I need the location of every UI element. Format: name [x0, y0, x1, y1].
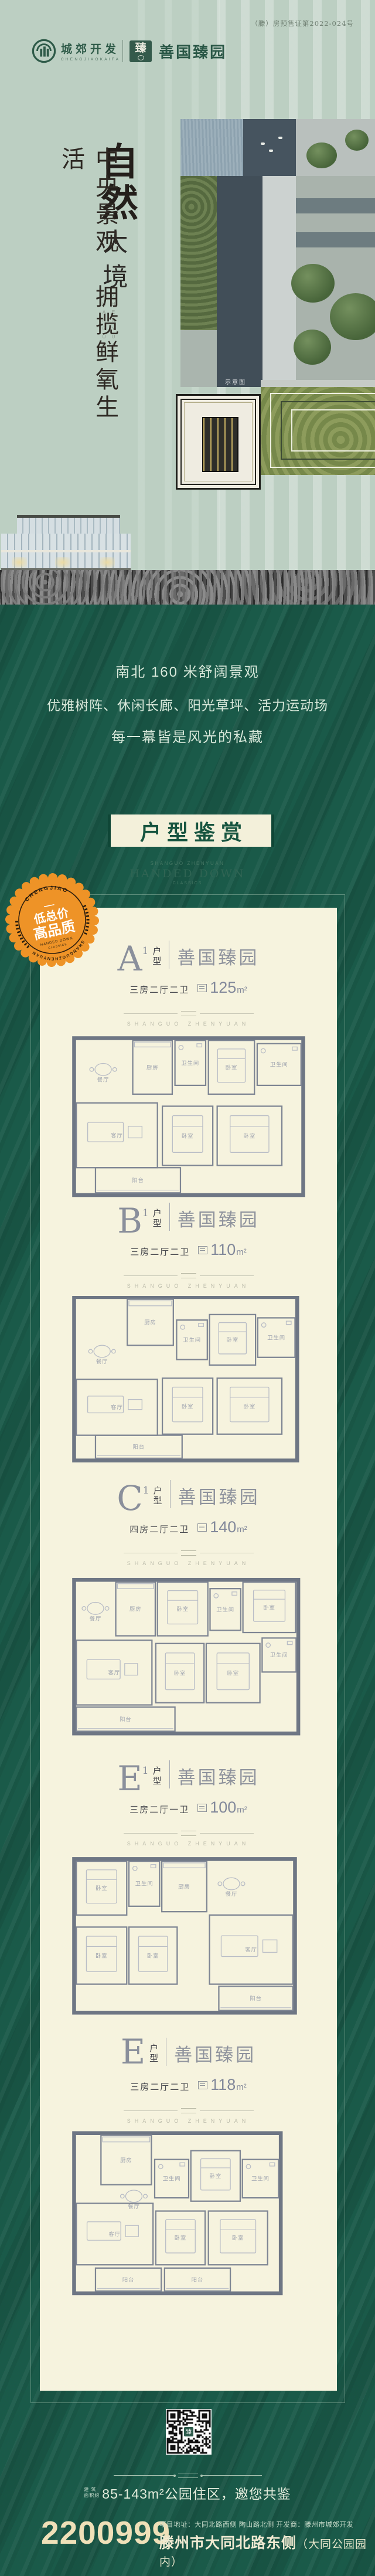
svg-text:阳台: 阳台 [191, 2276, 203, 2283]
plan-area-unit: m² [237, 1805, 247, 1815]
presale-license-text: （滕）房预售证第2022-024号 [251, 19, 354, 28]
svg-text:卫生间: 卫生间 [135, 1881, 153, 1887]
plan-area-unit: m² [237, 1525, 247, 1535]
svg-text:阳台: 阳台 [122, 2276, 134, 2283]
plan-type-label: 户型 [153, 1766, 162, 1786]
plan-room-count: 三房二厅二卫 [130, 2081, 190, 2093]
plan-room-count: 四房二厅二卫 [129, 1523, 189, 1535]
svg-text:卧室: 卧室 [176, 1606, 189, 1612]
plan-area-unit: m² [237, 985, 247, 995]
svg-text:卫生间: 卫生间 [216, 1606, 234, 1613]
clubhouse-rendering [1, 515, 131, 570]
plan-watermark: SHANGUO ZHENYUAN [40, 1283, 337, 1289]
svg-text:卫生间: 卫生间 [251, 2175, 270, 2182]
svg-text:餐厅: 餐厅 [225, 1891, 237, 1897]
hero-section: （滕）房预售证第2022-024号 城郊开发 CHENGJIAOKAIFA 臻 … [0, 0, 375, 570]
developer-name: 城郊开发 [61, 40, 120, 56]
plan-type-label: 户型 [152, 946, 161, 966]
water-feature [180, 119, 243, 176]
poster-page: （滕）房预售证第2022-024号 城郊开发 CHENGJIAOKAIFA 臻 … [0, 0, 375, 2576]
svg-text:卫生间: 卫生间 [270, 1652, 288, 1658]
plan-letter: A1 [118, 934, 149, 976]
svg-text:卫生间: 卫生间 [162, 2175, 180, 2182]
area-icon [198, 2081, 207, 2089]
svg-text:卧室: 卧室 [227, 1670, 239, 1676]
floorplan-drawing: 卧室卫生间厨房餐厅卧室卧室客厅阳台 [62, 1854, 315, 2024]
headline-slogan: 中央景观 拥揽鲜氧生活 [54, 147, 122, 422]
floorplan-drawing: 厨房卫生间卧室卫生间餐厅客厅卧室卧室阳台阳台 [62, 2131, 315, 2301]
address-block: 项目地址：大同北路西侧 陶山路北侧 开发商：滕州市城郊开发 滕州市大同北路东侧（… [159, 2520, 375, 2570]
svg-text:阳台: 阳台 [120, 1716, 132, 1722]
plaza [296, 176, 375, 387]
plan-area: 118 [210, 2076, 236, 2094]
floorplan-drawing: 餐厅厨房卧室卫生间卧室客厅卧室卧室卫生间阳台 [62, 1573, 315, 1743]
svg-text:客厅: 客厅 [108, 2231, 121, 2237]
svg-text:卫生间: 卫生间 [181, 1060, 199, 1066]
footer-divider-ornament [114, 2473, 262, 2478]
plan-room-count: 三房二厅二卫 [129, 983, 189, 996]
floorplan-drawing: 厨房餐厅卫生间卧室卫生间客厅卧室卧室阳台 [62, 1296, 315, 1466]
floorplan-section-E: E 户型 善国臻园 三房二厅二卫 118 m² SHANGUO ZHENYUAN… [40, 2031, 337, 2301]
intro-line-3: 每一幕皆是风光的私藏 [0, 725, 375, 746]
plan-letter: B1 [117, 1196, 148, 1238]
plan-type-label: 户型 [153, 1209, 162, 1228]
plan-ornament [40, 2108, 337, 2113]
plan-letter: E1 [117, 1754, 148, 1796]
plan-letter: E [121, 2035, 145, 2069]
area-icon [197, 1523, 207, 1532]
plan-watermark: SHANGUO ZHENYUAN [40, 1560, 337, 1566]
size-text: 85-143m²公园住区，邀您共鉴 [102, 2483, 291, 2503]
plan-brand: 善国臻园 [174, 2040, 256, 2066]
svg-text:卧室: 卧室 [173, 1670, 186, 1676]
svg-text:厨房: 厨房 [178, 1883, 190, 1889]
floorplan-card-stack: A1 户型 善国臻园 三房二厅二卫 125 m² SHANGUO ZHENYUA… [40, 908, 337, 2391]
intro-line-1: 南北 160 米舒阔景观 [0, 660, 375, 681]
plan-watermark: SHANGUO ZHENYUAN [40, 1841, 337, 1847]
svg-text:客厅: 客厅 [111, 1404, 123, 1410]
address-big: 滕州市大同北路东侧（大同公园园内） [159, 2531, 375, 2570]
svg-text:卧室: 卧室 [243, 1403, 255, 1409]
pavement [296, 119, 375, 176]
plan-ornament [40, 1831, 337, 1836]
svg-text:厨房: 厨房 [129, 1606, 141, 1612]
svg-text:厨房: 厨房 [120, 2157, 132, 2163]
plan-letter: C1 [117, 1474, 149, 1515]
plan-title: E1 户型 善国臻园 [40, 1754, 337, 1795]
area-icon [197, 984, 207, 992]
project-seal-icon: 臻 [129, 40, 152, 62]
plan-brand: 善国臻园 [178, 1205, 260, 1231]
svg-text:客厅: 客厅 [111, 1132, 123, 1138]
photo-caption: 示意图 [225, 377, 246, 386]
svg-text:阳台: 阳台 [132, 1177, 144, 1183]
intro-line-2: 优雅树阵、休闲长廊、阳光草坪、活力运动场 [0, 694, 375, 714]
svg-text:卧室: 卧室 [263, 1604, 275, 1610]
svg-text:卧室: 卧室 [174, 2235, 186, 2241]
floorplan-section-C1: C1 户型 善国臻园 四房二厅二卫 140 m² SHANGUO ZHENYUA… [40, 1474, 337, 1743]
svg-text:餐厅: 餐厅 [96, 1358, 108, 1365]
svg-text:卧室: 卧室 [209, 2173, 221, 2179]
canal [217, 176, 262, 387]
plan-type-label: 户型 [149, 2044, 158, 2063]
svg-text:臻: 臻 [186, 2428, 192, 2436]
svg-text:餐厅: 餐厅 [89, 1615, 101, 1621]
svg-text:卫生间: 卫生间 [267, 1334, 285, 1340]
plan-spec: 三房二厅二卫 110 m² [40, 1241, 337, 1259]
plan-spec: 三房二厅二卫 118 m² [40, 2076, 337, 2094]
floorplan-section-E1: E1 户型 善国臻园 三房二厅一卫 100 m² SHANGUO ZHENYUA… [40, 1754, 337, 2024]
svg-text:客厅: 客厅 [245, 1946, 257, 1953]
svg-text:阳台: 阳台 [250, 1995, 262, 2001]
plan-watermark: SHANGUO ZHENYUAN [40, 2118, 337, 2124]
plan-area: 110 [210, 1241, 236, 1259]
plan-title: B1 户型 善国臻园 [40, 1196, 337, 1237]
plan-spec: 三房二厅二卫 125 m² [40, 979, 337, 997]
project-name: 善国臻园 [159, 40, 227, 62]
developer-name-en: CHENGJIAOKAIFA [61, 57, 120, 62]
aerial-photo: 示意图 [180, 119, 375, 387]
plan-spec: 四房二厅二卫 140 m² [40, 1518, 337, 1536]
main-green-section: 南北 160 米舒阔景观 优雅树阵、休闲长廊、阳光草坪、活力运动场 每一幕皆是风… [0, 605, 375, 2576]
hedge [180, 176, 217, 330]
svg-text:餐厅: 餐厅 [97, 1076, 109, 1082]
brand-bar: 城郊开发 CHENGJIAOKAIFA 臻 善国臻园 [32, 36, 227, 66]
svg-text:卧室: 卧室 [226, 1336, 238, 1343]
plan-spec: 三房二厅一卫 100 m² [40, 1798, 337, 1817]
gallery-title: 户型鉴赏 [140, 816, 248, 846]
stepped-garden [261, 387, 375, 475]
floorplan-drawing: 餐厅厨房卫生间卧室卫生间客厅卧室卧室阳台 [62, 1034, 315, 1204]
svg-text:卧室: 卧室 [146, 1952, 159, 1959]
svg-text:卧室: 卧室 [243, 1132, 255, 1139]
developer-name-block: 城郊开发 CHENGJIAOKAIFA [61, 40, 120, 62]
plan-area: 125 [210, 979, 236, 997]
plan-title: C1 户型 善国臻园 [40, 1474, 337, 1515]
gallery-title-box: 户型鉴赏 [108, 814, 274, 847]
plan-ornament [40, 1011, 337, 1016]
plan-brand: 善国臻园 [178, 1482, 260, 1509]
plan-area: 100 [210, 1798, 236, 1817]
floorplan-section-B1: B1 户型 善国臻园 三房二厅二卫 110 m² SHANGUO ZHENYUA… [40, 1196, 337, 1466]
address-small: 项目地址：大同北路西侧 陶山路北侧 开发商：滕州市城郊开发 [159, 2520, 375, 2529]
footer-size-line: 建 筑面积约 85-143m²公园住区，邀您共鉴 [0, 2483, 375, 2503]
plan-area: 140 [210, 1518, 236, 1536]
plan-title: E 户型 善国臻园 [40, 2031, 337, 2072]
svg-text:卫生间: 卫生间 [270, 1061, 288, 1068]
svg-text:卧室: 卧室 [181, 1403, 193, 1409]
svg-text:客厅: 客厅 [108, 1669, 120, 1676]
svg-text:卫生间: 卫生间 [183, 1336, 201, 1343]
svg-text:阳台: 阳台 [132, 1444, 145, 1450]
plan-ornament [40, 1273, 337, 1278]
svg-text:厨房: 厨房 [144, 1319, 156, 1325]
area-icon [198, 1246, 207, 1254]
svg-text:厨房: 厨房 [146, 1064, 158, 1070]
svg-text:卧室: 卧室 [225, 1064, 237, 1070]
forest-photo-strip [0, 570, 375, 605]
brand-divider [122, 40, 123, 62]
floorplan-section-A1: A1 户型 善国臻园 三房二厅二卫 125 m² SHANGUO ZHENYUA… [40, 934, 337, 1204]
plan-type-label: 户型 [154, 1486, 162, 1506]
svg-text:卧室: 卧室 [181, 1132, 193, 1139]
dark-pool [243, 119, 296, 176]
plan-area-unit: m² [236, 1247, 247, 1257]
plan-brand: 善国臻园 [178, 1763, 260, 1789]
plan-ornament [40, 1550, 337, 1556]
plan-room-count: 三房二厅二卫 [130, 1245, 190, 1258]
svg-text:卧室: 卧室 [95, 1952, 107, 1959]
plan-room-count: 三房二厅一卫 [129, 1803, 189, 1815]
pavilion-topview [176, 394, 261, 490]
developer-logo-icon [32, 39, 56, 63]
phone-number: 2200999 [41, 2515, 171, 2550]
area-icon [197, 1804, 207, 1812]
qr-code: 臻 [166, 2409, 212, 2455]
svg-text:卧室: 卧室 [95, 1885, 107, 1891]
svg-text:卧室: 卧室 [231, 2235, 244, 2241]
plan-area-unit: m² [236, 2082, 247, 2092]
plan-watermark: SHANGUO ZHENYUAN [40, 1021, 337, 1027]
plan-brand: 善国臻园 [177, 943, 259, 969]
size-prefix: 建 筑面积约 [84, 2487, 100, 2499]
